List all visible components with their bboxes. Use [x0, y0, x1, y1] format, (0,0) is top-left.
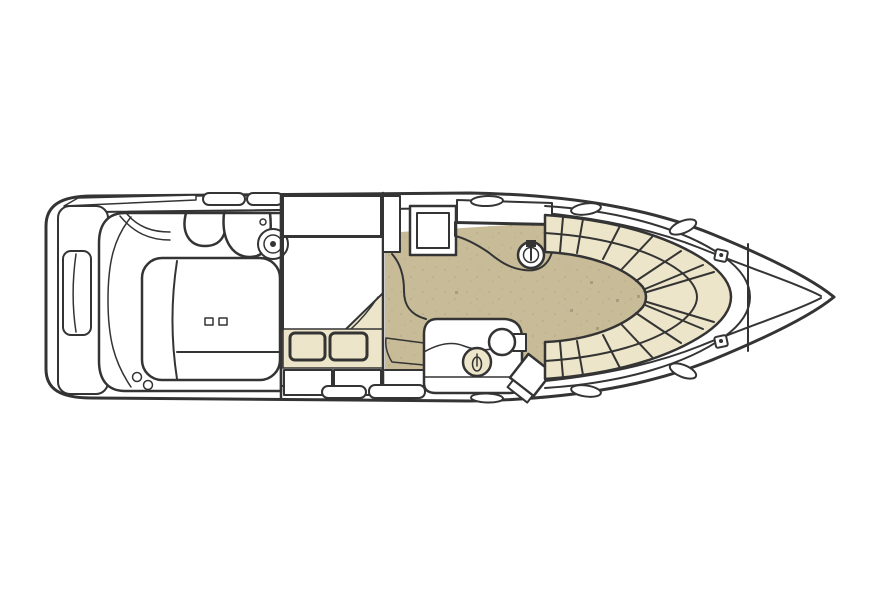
floor-dot [596, 327, 599, 330]
galley-faucet-base [526, 240, 536, 247]
boat-floor-plan-svg [0, 0, 871, 600]
deck-cleat [714, 249, 728, 262]
gunwale-pad [247, 193, 283, 205]
deck-hatch [471, 195, 503, 206]
gunwale-pad [322, 386, 366, 398]
companionway-strip [383, 196, 400, 252]
boat-floor-plan-page [0, 0, 871, 600]
gunwale-pad [203, 193, 245, 205]
berth-cabinet [283, 196, 381, 236]
pillow [290, 333, 325, 360]
deck-hatch [471, 393, 503, 403]
helm-wheel-hub [270, 241, 276, 247]
cockpit-settee [142, 258, 280, 380]
helm-seat [185, 213, 227, 246]
pillow [330, 333, 367, 360]
floor-dot [455, 291, 458, 294]
floor-dot [590, 281, 593, 284]
gunwale-pad [369, 385, 425, 398]
floor-dot [637, 295, 640, 298]
transom-seat [63, 251, 91, 335]
table-pedestal [205, 318, 213, 325]
cup-holder [133, 373, 142, 382]
floor-dot [570, 309, 573, 312]
cup-holder [144, 381, 153, 390]
table-pedestal [219, 318, 227, 325]
floor-dot [616, 299, 619, 302]
dash-dot [260, 219, 266, 225]
toilet [489, 329, 515, 355]
deck-cleat [714, 335, 728, 348]
